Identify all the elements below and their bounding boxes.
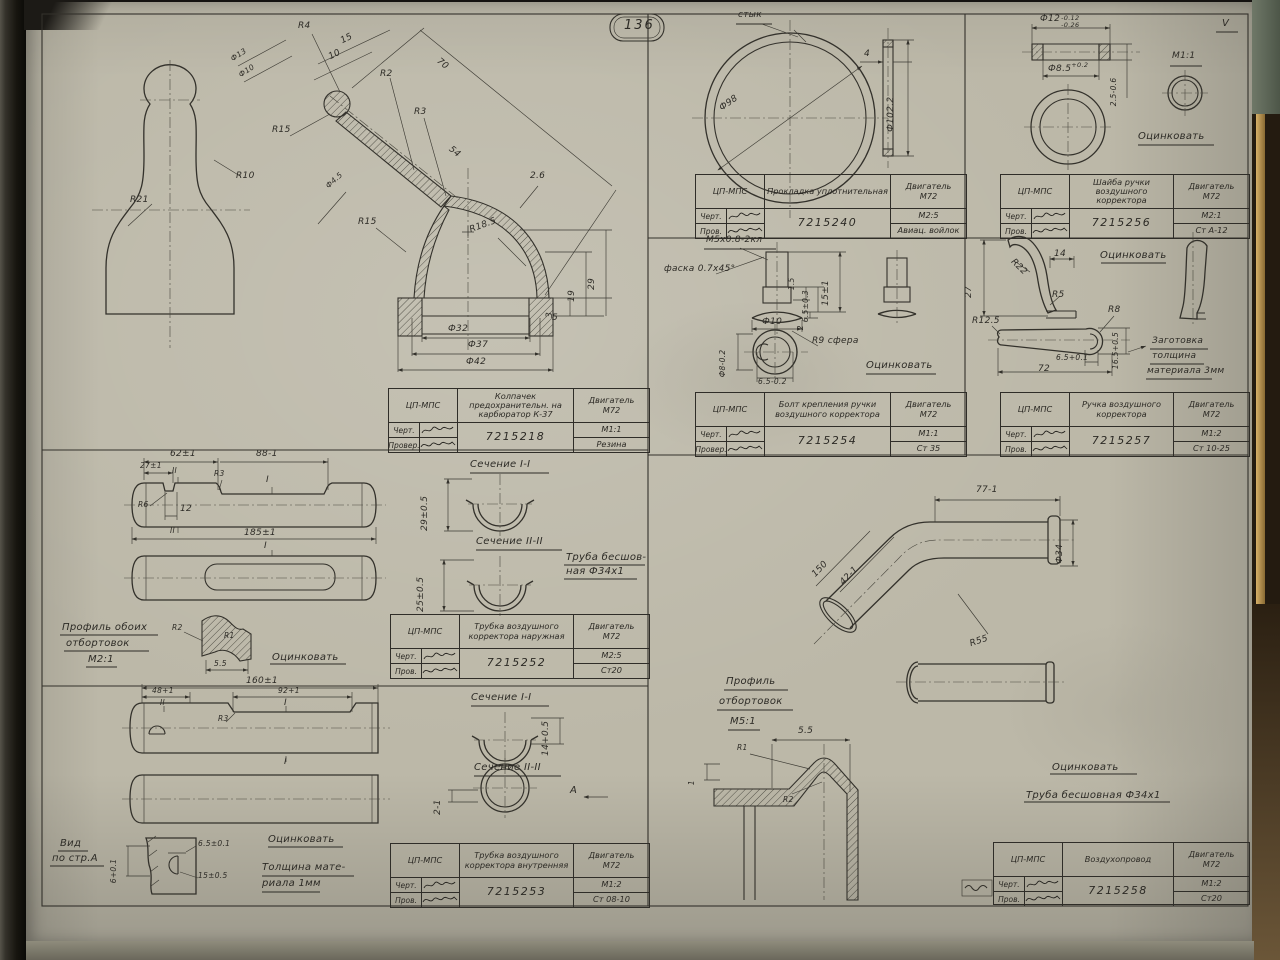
- part-name: Болт крепления ручки воздушного корректо…: [764, 393, 890, 426]
- drawn-row: Черт.: [391, 648, 459, 663]
- material-note: Труба бесшовная Ф34х1: [1026, 790, 1161, 801]
- section-mark: I: [266, 476, 269, 486]
- dim-label: 27±1: [140, 462, 162, 470]
- org-cell: ЦП-МПС: [696, 393, 764, 426]
- drawing-washer: [1022, 24, 1214, 170]
- signature: [420, 423, 457, 437]
- org-cell: ЦП-МПС: [389, 389, 457, 422]
- scale-cell: М1:2: [573, 877, 649, 892]
- page-number: 136: [624, 19, 655, 33]
- view-note: по стр.А: [52, 853, 98, 864]
- dim-label: 48+1: [152, 687, 174, 695]
- dim-label: 77-1: [976, 486, 998, 496]
- dim-label: 2: [797, 325, 805, 330]
- checked-row: Провер.: [389, 437, 457, 452]
- dim-label: Ф8-0.2: [719, 350, 727, 378]
- part-name: Трубка воздушного корректора наружная: [459, 615, 573, 648]
- signature: [727, 224, 764, 238]
- signature: [1032, 209, 1069, 223]
- dim-label: 6.5-0.2: [758, 378, 787, 386]
- dim-label: 29±0.5: [421, 496, 431, 531]
- engine-cell: ДвигательМ72: [890, 175, 966, 208]
- title-block: ЦП-МПС Прокладка уплотнительная Двигател…: [695, 174, 967, 239]
- org-cell: ЦП-МПС: [696, 175, 764, 208]
- dim-label: 1: [688, 780, 696, 785]
- org-cell: ЦП-МПС: [1001, 393, 1069, 426]
- checked-row: Пров.: [1001, 223, 1069, 238]
- org-cell: ЦП-МПС: [1001, 175, 1069, 208]
- dim-label: 6.5±0.1: [198, 840, 230, 848]
- title-block: ЦП-МПС Болт крепления ручки воздушного к…: [695, 392, 967, 457]
- zinc-note: Оцинковать: [1100, 250, 1167, 261]
- radius-label: R15: [358, 218, 377, 228]
- drawing-number: 7215258: [1062, 876, 1173, 906]
- dim-label: 3: [546, 312, 556, 318]
- dim-label: Ф10: [762, 318, 782, 328]
- dim-label: 72: [1038, 365, 1050, 375]
- checked-row: Пров.: [1001, 441, 1069, 456]
- page-number-box: [610, 14, 1238, 41]
- drawn-row: Черт.: [389, 422, 457, 437]
- part-name: Шайба ручки воздушного корректора: [1069, 175, 1173, 208]
- section-mark: I: [284, 699, 287, 709]
- drawn-row: Черт.: [391, 877, 459, 892]
- scale-cell: М1:2: [1173, 426, 1249, 441]
- signature: [727, 427, 764, 441]
- radius-label: R3: [218, 715, 229, 723]
- dim-label: 1.5: [788, 277, 796, 290]
- radius-label: R1: [224, 632, 235, 640]
- view-arrow-label: А: [570, 785, 577, 796]
- blank-note: толщина: [1152, 352, 1196, 362]
- material-cell: Ст 08-10: [573, 892, 649, 907]
- dim-label: 16.5+0.5: [1112, 332, 1120, 369]
- dim-label: 5.5: [798, 727, 813, 737]
- scale-cell: М2:1: [1173, 208, 1249, 223]
- material-note: риала 1мм: [262, 878, 321, 889]
- engine-cell: ДвигательМ72: [1173, 393, 1249, 426]
- drawing-number: 7215254: [764, 426, 890, 456]
- engine-cell: ДвигательМ72: [573, 615, 649, 648]
- blank-note: материала 3мм: [1147, 367, 1225, 377]
- drawing-number: 7215240: [764, 208, 890, 238]
- part-name: Колпачек предохранительн. на карбюратор …: [457, 389, 573, 422]
- drawing-linework: .o{stroke:#33312b;stroke-width:1.3;fill:…: [0, 0, 1280, 960]
- material-cell: Авиац. войлок: [890, 223, 966, 238]
- dim-label: Ф102.2: [887, 97, 897, 132]
- checked-row: Провер.: [696, 441, 764, 456]
- scale-cell: М1:1: [890, 426, 966, 441]
- title-block: ЦП-МПС Колпачек предохранительн. на карб…: [388, 388, 650, 453]
- drawn-row: Черт.: [696, 208, 764, 223]
- dim-label: 5.5: [214, 660, 227, 668]
- signature: [1032, 442, 1069, 456]
- drawing-number: 7215256: [1069, 208, 1173, 238]
- radius-label: R6: [138, 501, 149, 509]
- radius-label: R1: [737, 744, 748, 752]
- title-block: ЦП-МПС Шайба ручки воздушного корректора…: [1000, 174, 1250, 239]
- checked-row: Пров.: [994, 891, 1062, 906]
- dim-label: 19: [568, 290, 578, 302]
- radius-label: R3: [214, 470, 225, 478]
- dim-label: Ф12-0.12-0.26: [1040, 15, 1079, 28]
- section-title: Сечение I-I: [470, 459, 530, 470]
- radius-label: R2: [172, 624, 183, 632]
- scale-cell: М1:2: [1173, 876, 1249, 891]
- material-note: Труба бесшов-: [566, 552, 646, 563]
- radius-label: R2: [783, 796, 794, 804]
- dim-label: 2.5-0.6: [1110, 78, 1118, 107]
- dim-label: 27: [965, 286, 975, 298]
- signature: [422, 893, 459, 907]
- small-stamp: [962, 880, 992, 896]
- dim-label: 62±1: [170, 450, 196, 460]
- material-cell: Ст А-12: [1173, 223, 1249, 238]
- dim-label: 160±1: [246, 677, 278, 687]
- radius-label: R10: [236, 172, 255, 182]
- checked-row: Пров.: [391, 892, 459, 907]
- zinc-note: Оцинковать: [268, 834, 335, 845]
- radius-label: R3: [414, 108, 427, 118]
- dim-label: Ф34: [1056, 544, 1066, 564]
- checked-row: Пров.: [696, 223, 764, 238]
- blank-note: Заготовка: [1152, 337, 1203, 347]
- radius-label: R4: [298, 22, 311, 32]
- section-title: Сечение II-II: [474, 762, 541, 773]
- org-cell: ЦП-МПС: [391, 615, 459, 648]
- dim-label: Ф32: [448, 325, 468, 335]
- drawing-number: 7215253: [459, 877, 573, 907]
- section-mark: I: [264, 542, 267, 552]
- profile-note: отбортовок: [66, 638, 130, 649]
- dim-label: 15±1: [822, 280, 832, 306]
- section-mark: II: [172, 467, 177, 475]
- drawn-row: Черт.: [696, 426, 764, 441]
- signature: [420, 438, 457, 452]
- engine-cell: ДвигательМ72: [1173, 175, 1249, 208]
- dim-label: Ф37: [468, 341, 488, 351]
- material-cell: Ст 35: [890, 441, 966, 456]
- scale-cell: М2:5: [890, 208, 966, 223]
- title-block: ЦП-МПС Ручка воздушного корректора Двига…: [1000, 392, 1250, 457]
- radius-label: R2: [380, 70, 393, 80]
- title-block: ЦП-МПС Воздухопровод ДвигательМ72 Черт. …: [993, 842, 1250, 905]
- signature: [422, 664, 459, 678]
- radius-label: R15: [272, 126, 291, 136]
- engine-cell: ДвигательМ72: [573, 844, 649, 877]
- photographed-drawing-sheet: .o{stroke:#33312b;stroke-width:1.3;fill:…: [0, 0, 1280, 960]
- dim-label: 14+0.5: [542, 721, 552, 756]
- profile-note: М2:1: [88, 654, 114, 665]
- dim-label: 2-1: [434, 799, 444, 815]
- profile-note: Профиль обоих: [62, 622, 147, 633]
- radius-label: R8: [1108, 306, 1121, 316]
- dim-label: 25±0.5: [417, 577, 427, 612]
- dim-label: 6.5+0.1: [1056, 354, 1088, 362]
- zinc-note: Оцинковать: [866, 360, 933, 371]
- scale-cell: М2:5: [573, 648, 649, 663]
- view-note: Вид: [60, 838, 81, 849]
- dim-label: 29: [588, 278, 598, 290]
- engine-cell: ДвигательМ72: [890, 393, 966, 426]
- material-cell: Ст20: [1173, 891, 1249, 906]
- dim-label: 6.5±0.3: [802, 290, 810, 322]
- section-mark: I: [284, 758, 287, 768]
- dim-label: 185±1: [244, 529, 276, 539]
- profile-note: М5:1: [730, 716, 756, 727]
- chamfer-label: фаска 0.7х45°: [664, 265, 735, 275]
- signature: [1025, 877, 1062, 891]
- material-cell: Резина: [573, 437, 649, 452]
- radius-label: R5: [1052, 291, 1065, 301]
- zinc-note: Оцинковать: [272, 652, 339, 663]
- dim-label: 88-1: [256, 450, 278, 460]
- radius-label: R12.5: [972, 317, 1000, 327]
- scale-cell: М1:1: [573, 422, 649, 437]
- part-name: Ручка воздушного корректора: [1069, 393, 1173, 426]
- dim-label: 2.6: [530, 172, 545, 182]
- dim-label: Ф42: [466, 358, 486, 368]
- signature: [1032, 427, 1069, 441]
- signature: [422, 878, 459, 892]
- dim-label: 92+1: [278, 687, 300, 695]
- radius-label: R9 сфера: [812, 337, 859, 347]
- material-cell: Ст20: [573, 663, 649, 678]
- material-cell: Ст 10-25: [1173, 441, 1249, 456]
- section-mark: II: [170, 527, 175, 535]
- zinc-note: Оцинковать: [1052, 762, 1119, 773]
- drawing-number: 7215252: [459, 648, 573, 678]
- drawn-row: Черт.: [1001, 208, 1069, 223]
- dim-label: 6+0.1: [110, 859, 118, 883]
- zinc-note: Оцинковать: [1138, 131, 1205, 142]
- engine-cell: ДвигательМ72: [573, 389, 649, 422]
- drawing-number: 7215257: [1069, 426, 1173, 456]
- dim-label: 12: [180, 505, 192, 515]
- profile-note: отбортовок: [719, 696, 783, 707]
- sheet-mark: V: [1222, 18, 1229, 29]
- org-cell: ЦП-МПС: [994, 843, 1062, 876]
- section-title: Сечение II-II: [476, 536, 543, 547]
- checked-row: Пров.: [391, 663, 459, 678]
- material-note: Толщина мате-: [262, 862, 346, 873]
- drawing-number: 7215218: [457, 422, 573, 452]
- drawn-row: Черт.: [994, 876, 1062, 891]
- section-mark: II: [160, 699, 165, 707]
- scale-note: М1:1: [1172, 52, 1195, 62]
- profile-note: Профиль: [726, 676, 775, 687]
- title-block: ЦП-МПС Трубка воздушного корректора внут…: [390, 843, 650, 908]
- part-name: Трубка воздушного корректора внутренняя: [459, 844, 573, 877]
- dim-label: 14: [1054, 250, 1066, 260]
- drawing-cap: [92, 28, 616, 372]
- signature: [1032, 224, 1069, 238]
- signature: [727, 209, 764, 223]
- part-name: Прокладка уплотнительная: [764, 175, 890, 208]
- dim-label: Ф8.5+0.2: [1048, 62, 1088, 75]
- signature: [727, 442, 764, 456]
- note-label: стык: [738, 11, 762, 21]
- section-title: Сечение I-I: [471, 692, 531, 703]
- dim-label: 4: [864, 50, 870, 60]
- drawn-row: Черт.: [1001, 426, 1069, 441]
- signature: [422, 649, 459, 663]
- org-cell: ЦП-МПС: [391, 844, 459, 877]
- material-note: ная Ф34х1: [566, 566, 624, 577]
- signature: [1025, 892, 1062, 906]
- radius-label: R21: [130, 196, 149, 206]
- title-block: ЦП-МПС Трубка воздушного корректора нару…: [390, 614, 650, 679]
- dim-label: 15±0.5: [198, 872, 228, 880]
- engine-cell: ДвигательМ72: [1173, 843, 1249, 876]
- part-name: Воздухопровод: [1062, 843, 1173, 876]
